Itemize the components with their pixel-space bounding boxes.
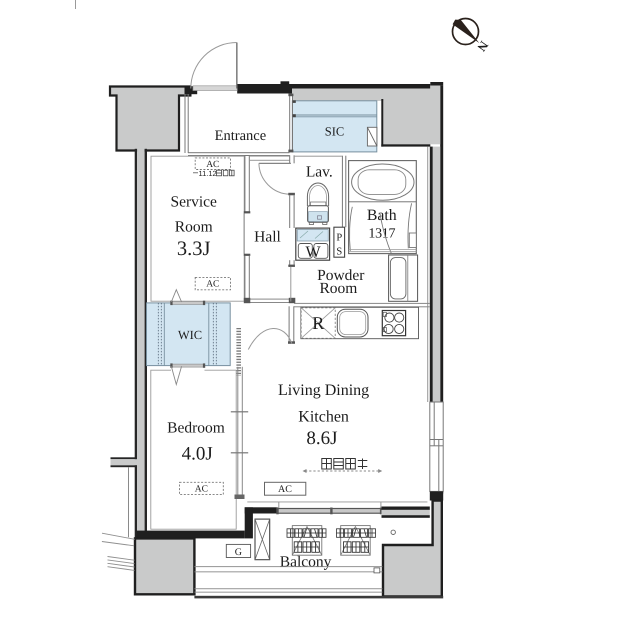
svg-text:AC: AC: [278, 484, 292, 495]
svg-text:S: S: [336, 247, 342, 258]
svg-text:G: G: [235, 547, 242, 558]
svg-text:P: P: [336, 233, 342, 244]
svg-text:Room: Room: [175, 218, 213, 235]
svg-text:Lav.: Lav.: [306, 163, 333, 180]
svg-text:AC: AC: [206, 280, 219, 290]
svg-text:SIC: SIC: [325, 125, 344, 139]
svg-text:Kitchen: Kitchen: [298, 408, 349, 425]
svg-text:Living Dining: Living Dining: [278, 382, 369, 399]
svg-text:W: W: [305, 244, 321, 261]
svg-text:8.6J: 8.6J: [306, 428, 337, 449]
svg-text:3.3J: 3.3J: [177, 238, 211, 260]
svg-text:11.12: 11.12: [199, 169, 217, 178]
svg-text:4.0J: 4.0J: [182, 444, 213, 465]
svg-text:Hall: Hall: [254, 229, 281, 246]
svg-text:Entrance: Entrance: [215, 128, 267, 144]
svg-text:Room: Room: [319, 280, 357, 297]
svg-text:WIC: WIC: [178, 328, 202, 342]
svg-text:Balcony: Balcony: [280, 553, 332, 570]
svg-text:Bedroom: Bedroom: [167, 420, 225, 437]
svg-text:1317: 1317: [368, 226, 395, 241]
svg-text:AC: AC: [195, 485, 208, 495]
svg-text:R: R: [312, 313, 324, 333]
svg-text:Service: Service: [170, 193, 217, 210]
